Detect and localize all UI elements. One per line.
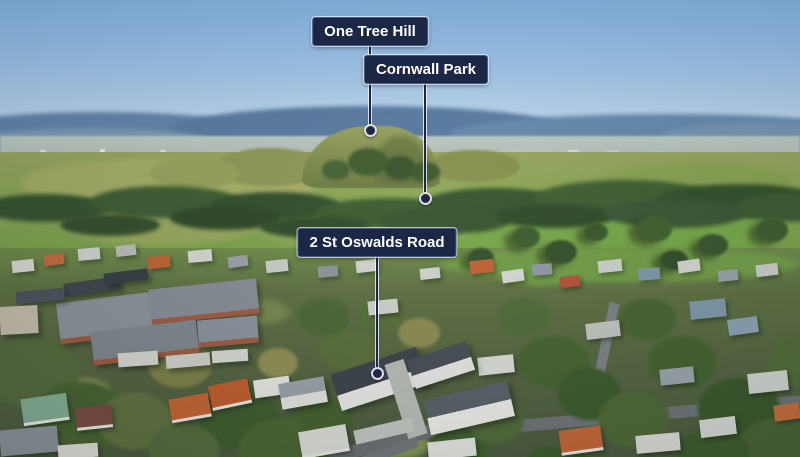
leader-line-st-oswalds [376,252,378,373]
marker-dot-cornwall-park [419,192,432,205]
marker-dot-st-oswalds [371,367,384,380]
label-cornwall-park: Cornwall Park [364,55,488,84]
label-one-tree-hill: One Tree Hill [312,17,428,46]
aerial-photo: One Tree Hill Cornwall Park 2 St Oswalds… [0,0,800,457]
marker-dot-one-tree-hill [364,124,377,137]
label-st-oswalds-road: 2 St Oswalds Road [297,228,456,257]
leader-line-cornwall-park [424,79,426,198]
